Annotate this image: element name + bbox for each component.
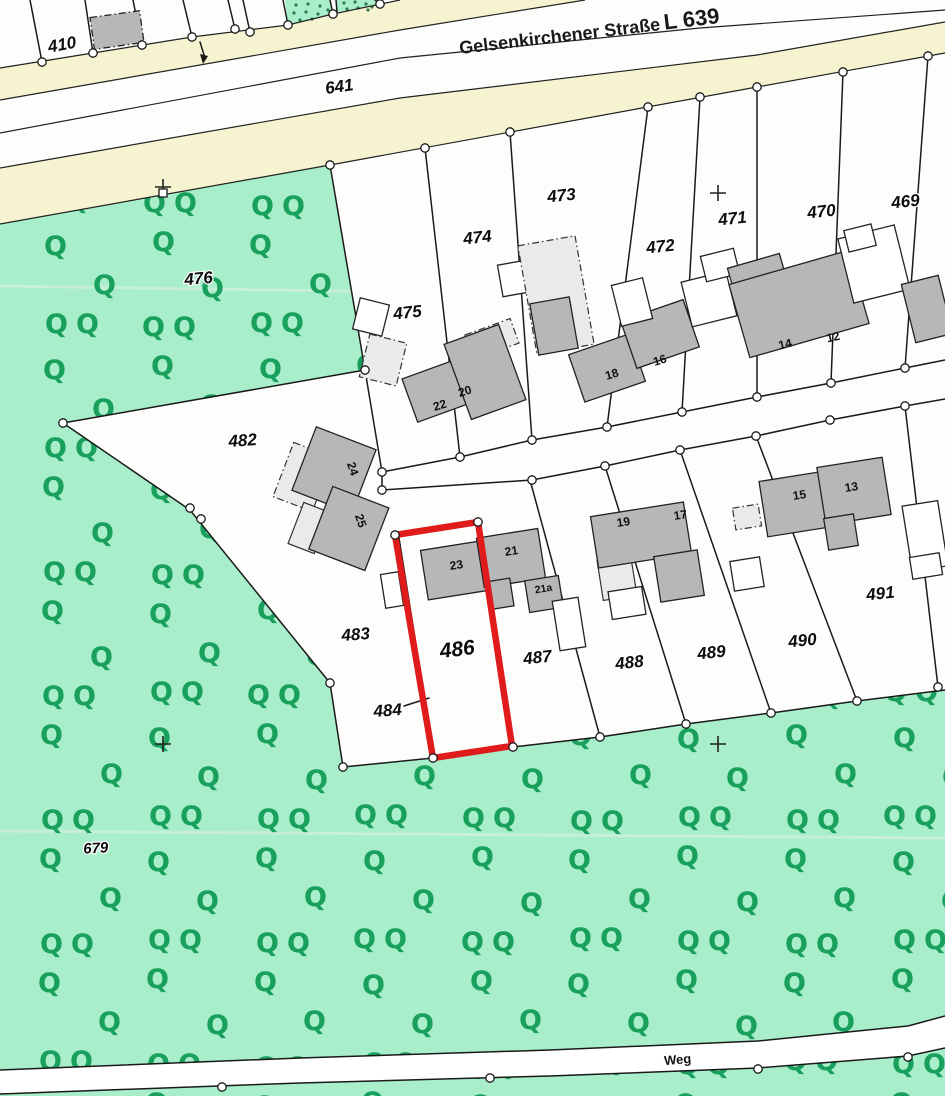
tree-icon: Q <box>892 847 915 878</box>
boundary-point-icon <box>924 52 932 60</box>
tree-icon: Q <box>182 560 205 591</box>
tree-icon: Q <box>43 557 66 588</box>
tree-icon: Q <box>891 964 914 995</box>
tree-icon: Q <box>520 888 543 919</box>
tree-icon: Q <box>469 1090 492 1096</box>
tree-icon: Q <box>783 968 806 999</box>
tree-icon: Q <box>198 638 221 669</box>
tree-icon: Q <box>735 1011 758 1042</box>
tree-icon: Q <box>629 760 652 791</box>
tree-icon: Q <box>76 309 99 340</box>
boundary-point-icon <box>528 436 536 444</box>
parcel-label-483: 483 <box>340 624 371 645</box>
parcel-label-473: 473 <box>545 185 577 207</box>
tree-icon: Q <box>893 925 916 956</box>
boundary-point-icon <box>329 10 337 18</box>
parcel-label-475: 475 <box>391 302 423 324</box>
tree-icon: Q <box>923 1049 945 1080</box>
boundary-point-icon <box>826 416 834 424</box>
tree-icon: Q <box>569 923 592 954</box>
boundary-point-icon <box>378 486 386 494</box>
boundary-point-icon <box>603 423 611 431</box>
boundary-point-icon <box>696 93 704 101</box>
tree-icon: Q <box>278 680 301 711</box>
boundary-point-icon <box>326 679 334 687</box>
tree-icon: Q <box>628 884 651 915</box>
tree-icon: Q <box>413 761 436 792</box>
tree-icon: Q <box>287 928 310 959</box>
tree-icon: Q <box>785 720 808 751</box>
tree-icon: Q <box>148 723 171 754</box>
tree-icon: Q <box>288 804 311 835</box>
tree-icon: Q <box>100 759 123 790</box>
orchard-dot-icon <box>292 11 295 14</box>
tree-icon: Q <box>568 845 591 876</box>
boundary-point-icon <box>376 0 384 8</box>
cadastral-map: QQQQQQQQQQQQQQQQQQQQQQQQQQQQQQQQQQQQQQQQ… <box>0 0 945 1096</box>
tree-icon: Q <box>676 841 699 872</box>
boundary-point-icon <box>596 733 604 741</box>
tree-icon: Q <box>941 886 945 917</box>
boundary-point-icon <box>339 763 347 771</box>
tree-icon: Q <box>309 269 332 300</box>
tree-icon: Q <box>43 355 66 386</box>
boundary-point-icon <box>59 419 67 427</box>
tree-icon: Q <box>785 929 808 960</box>
tree-icon: Q <box>461 927 484 958</box>
tree-icon: Q <box>40 929 63 960</box>
tree-icon: Q <box>385 800 408 831</box>
boundary-point-icon <box>486 1074 494 1082</box>
tree-icon: Q <box>74 557 97 588</box>
tree-icon: Q <box>914 801 937 832</box>
tree-icon: Q <box>38 968 61 999</box>
tree-icon: Q <box>45 309 68 340</box>
building-annex <box>608 587 646 620</box>
parcel-label-476: 476 <box>183 268 214 290</box>
tree-icon: Q <box>44 231 67 262</box>
parcel-label-488: 488 <box>613 652 645 674</box>
tree-icon: Q <box>784 844 807 875</box>
tree-icon: Q <box>384 924 407 955</box>
house-number-13: 13 <box>844 479 860 495</box>
tree-icon: Q <box>180 801 203 832</box>
orchard-dot-icon <box>306 2 309 5</box>
orchard-dot-icon <box>366 8 369 11</box>
parcel-label-489: 489 <box>695 642 727 664</box>
tree-icon: Q <box>146 964 169 995</box>
tree-icon: Q <box>44 433 67 464</box>
boundary-point-icon <box>644 103 652 111</box>
tree-icon: Q <box>41 596 64 627</box>
parcel-label-490: 490 <box>786 630 818 652</box>
tree-icon: Q <box>181 677 204 708</box>
tree-icon: Q <box>150 677 173 708</box>
boundary-point-icon <box>246 28 254 36</box>
parcel-label-486: 486 <box>437 636 476 663</box>
tree-icon: Q <box>255 843 278 874</box>
building-annex <box>909 553 942 579</box>
parcel-label-470: 470 <box>805 201 837 223</box>
house-number-15: 15 <box>792 487 808 503</box>
house-number-17: 17 <box>673 507 689 523</box>
tree-icon: Q <box>247 680 270 711</box>
tree-icon: Q <box>148 925 171 956</box>
tree-icon: Q <box>151 560 174 591</box>
tree-icon: Q <box>816 929 839 960</box>
boundary-point-icon <box>474 518 482 526</box>
boundary-point-icon <box>188 33 196 41</box>
building-annex <box>730 557 764 591</box>
boundary-point-icon <box>853 697 861 705</box>
parcel-label-471: 471 <box>716 208 747 230</box>
orchard-dot-icon <box>345 7 348 10</box>
tree-icon: Q <box>93 270 116 301</box>
boundary-point-icon <box>429 754 437 762</box>
tree-icon: Q <box>493 803 516 834</box>
boundary-point-icon <box>138 41 146 49</box>
boundary-point-icon <box>752 432 760 440</box>
boundary-point-icon <box>901 402 909 410</box>
tree-icon: Q <box>40 720 63 751</box>
boundary-marker-square <box>159 189 167 197</box>
boundary-point-icon <box>456 453 464 461</box>
tree-icon: Q <box>151 351 174 382</box>
tree-icon: Q <box>91 518 114 549</box>
tree-icon: Q <box>98 1007 121 1038</box>
tree-icon: Q <box>353 924 376 955</box>
boundary-point-icon <box>218 1083 226 1091</box>
boundary-point-icon <box>754 1065 762 1073</box>
tree-icon: Q <box>73 681 96 712</box>
boundary-point-icon <box>231 25 239 33</box>
boundary-point-icon <box>934 683 942 691</box>
tree-icon: Q <box>149 801 172 832</box>
tree-icon: Q <box>303 1006 326 1037</box>
tree-icon: Q <box>253 1091 276 1096</box>
boundary-point-icon <box>767 709 775 717</box>
tree-icon: Q <box>412 885 435 916</box>
tree-icon: Q <box>471 842 494 873</box>
parcel-label-641: 641 <box>324 75 355 98</box>
building <box>654 550 705 602</box>
tree-icon: Q <box>147 847 170 878</box>
tree-icon: Q <box>677 926 700 957</box>
parcel-label-482: 482 <box>227 430 258 451</box>
parcel-label-484: 484 <box>372 700 403 721</box>
tree-icon: Q <box>462 803 485 834</box>
tree-icon: Q <box>281 308 304 339</box>
tree-icon: Q <box>709 802 732 833</box>
tree-icon: Q <box>708 926 731 957</box>
tree-icon: Q <box>567 969 590 1000</box>
tree-icon: Q <box>173 312 196 343</box>
parcel-label-679: 679 <box>83 839 110 857</box>
tree-icon: Q <box>833 883 856 914</box>
tree-icon: Q <box>257 804 280 835</box>
tree-icon: Q <box>736 887 759 918</box>
house-number-23: 23 <box>449 557 465 573</box>
parcel-label-472: 472 <box>644 236 676 258</box>
parcel-label-469: 469 <box>889 191 921 213</box>
boundary-point-icon <box>326 161 334 169</box>
tree-icon: Q <box>883 801 906 832</box>
boundary-point-icon <box>509 743 517 751</box>
tree-icon: Q <box>817 805 840 836</box>
tree-icon: Q <box>890 1088 913 1096</box>
boundary-point-icon <box>361 366 369 374</box>
tree-icon: Q <box>675 965 698 996</box>
tree-icon: Q <box>250 308 273 339</box>
parcel-label-487: 487 <box>521 646 554 668</box>
tree-icon: Q <box>90 642 113 673</box>
orchard-dot-icon <box>353 0 356 3</box>
tree-icon: Q <box>99 883 122 914</box>
orchard-dot-icon <box>364 2 367 5</box>
boundary-point-icon <box>901 364 909 372</box>
orchard-dot-icon <box>294 3 297 6</box>
boundary-point-icon <box>421 144 429 152</box>
tree-icon: Q <box>411 1009 434 1040</box>
tree-icon: Q <box>304 882 327 913</box>
tree-icon: Q <box>206 1010 229 1041</box>
orchard-dot-icon <box>318 4 321 7</box>
boundary-point-icon <box>38 58 46 66</box>
tree-icon: Q <box>42 472 65 503</box>
tree-icon: Q <box>254 967 277 998</box>
tree-icon: Q <box>39 844 62 875</box>
orchard-dot-icon <box>304 10 307 13</box>
tree-icon: Q <box>601 806 624 837</box>
boundary-point-icon <box>753 83 761 91</box>
tree-icon: Q <box>354 800 377 831</box>
tree-icon: Q <box>677 724 700 755</box>
parcel-label-474: 474 <box>461 227 493 249</box>
parcel-label-491: 491 <box>864 583 895 605</box>
tree-icon: Q <box>282 191 305 222</box>
boundary-point-icon <box>678 408 686 416</box>
tree-icon: Q <box>249 230 272 261</box>
tree-icon: Q <box>678 802 701 833</box>
tree-icon: Q <box>256 719 279 750</box>
boundary-point-icon <box>904 1053 912 1061</box>
tree-icon: Q <box>197 762 220 793</box>
tree-icon: Q <box>521 764 544 795</box>
building <box>530 297 578 355</box>
building-annex-dashed <box>732 504 761 530</box>
tree-icon: Q <box>259 354 282 385</box>
path-label-weg: Weg <box>663 1051 691 1068</box>
boundary-point-icon <box>284 21 292 29</box>
tree-icon: Q <box>179 925 202 956</box>
tree-icon: Q <box>152 227 175 258</box>
cadastral-map-svg: QQQQQQQQQQQQQQQQQQQQQQQQQQQQQQQQQQQQQQQQ… <box>0 0 945 1096</box>
orchard-dot-icon <box>316 12 319 15</box>
tree-icon: Q <box>362 970 385 1001</box>
boundary-point-icon <box>601 462 609 470</box>
tree-icon: Q <box>834 759 857 790</box>
tree-icon: Q <box>42 681 65 712</box>
tree-icon: Q <box>893 723 916 754</box>
tree-icon: Q <box>782 1092 805 1096</box>
tree-icon: Q <box>72 805 95 836</box>
tree-icon: Q <box>924 925 945 956</box>
tree-icon: Q <box>492 927 515 958</box>
boundary-point-icon <box>528 476 536 484</box>
building <box>824 514 859 550</box>
boundary-point-icon <box>839 68 847 76</box>
boundary-point-icon <box>506 128 514 136</box>
tree-icon: Q <box>519 1005 542 1036</box>
tree-icon: Q <box>256 928 279 959</box>
tree-icon: Q <box>674 1089 697 1096</box>
boundary-point-icon <box>89 49 97 57</box>
tree-icon: Q <box>196 886 219 917</box>
tree-icon: Q <box>363 846 386 877</box>
tree-icon: Q <box>627 1008 650 1039</box>
tree-icon: Q <box>41 805 64 836</box>
house-number-19: 19 <box>616 514 632 530</box>
tree-icon: Q <box>251 191 274 222</box>
boundary-point-icon <box>676 446 684 454</box>
tree-icon: Q <box>786 805 809 836</box>
tree-icon: Q <box>71 929 94 960</box>
boundary-point-icon <box>197 515 205 523</box>
boundary-point-icon <box>378 468 386 476</box>
boundary-point-icon <box>827 379 835 387</box>
boundary-point-icon <box>682 720 690 728</box>
boundary-point-icon <box>186 504 194 512</box>
tree-icon: Q <box>361 1087 384 1096</box>
house-number-21: 21 <box>504 543 520 559</box>
tree-icon: Q <box>570 806 593 837</box>
boundary-point-icon <box>753 393 761 401</box>
boundary-point-icon <box>391 531 399 539</box>
tree-icon: Q <box>149 599 172 630</box>
tree-icon: Q <box>305 765 328 796</box>
orchard-dot-icon <box>342 1 345 4</box>
tree-icon: Q <box>600 923 623 954</box>
tree-icon: Q <box>470 966 493 997</box>
tree-icon: Q <box>726 763 749 794</box>
orchard-dot-icon <box>298 18 301 21</box>
tree-icon: Q <box>142 312 165 343</box>
